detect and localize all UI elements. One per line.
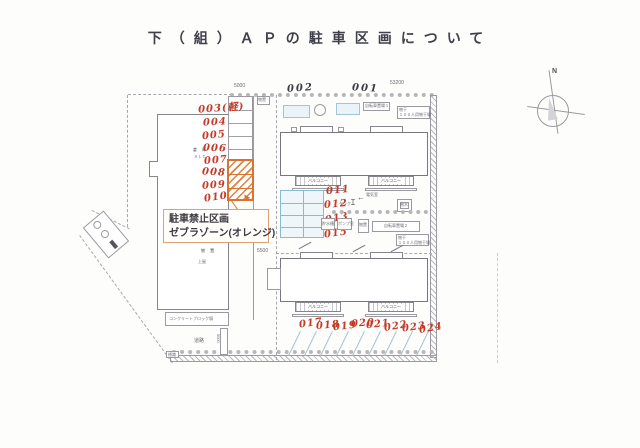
tree-symbol bbox=[100, 228, 111, 239]
courtyard-dash-line bbox=[276, 95, 277, 360]
electric-room-label: 電気室 bbox=[366, 193, 378, 198]
building-left-label2: 物 置 bbox=[201, 249, 216, 254]
zebra-divider bbox=[229, 174, 252, 175]
stall-number: 011 bbox=[325, 184, 350, 197]
stall-number: 007 bbox=[204, 154, 229, 167]
zebra-zone-orange bbox=[227, 159, 254, 201]
parking-stall-001 bbox=[336, 103, 360, 115]
stall-divider bbox=[229, 149, 252, 150]
building-left-canopy-label: 上屋 bbox=[198, 260, 206, 265]
grid-line bbox=[303, 191, 304, 237]
grid-line bbox=[281, 215, 323, 216]
zebra-divider bbox=[229, 188, 252, 189]
fence-bottom-posts bbox=[172, 350, 434, 354]
grid-line bbox=[281, 227, 323, 228]
parking-stall-002 bbox=[283, 105, 310, 118]
road-label: 道路 bbox=[194, 337, 204, 344]
grid-line bbox=[281, 203, 323, 204]
no-parking-callout: 駐車禁止区画 ゼブラゾーン(オレンジ) bbox=[163, 209, 269, 243]
bollard-row bbox=[332, 210, 428, 214]
balcony-strip: バルコニー bbox=[295, 302, 341, 312]
arrow-symbol: ← bbox=[357, 193, 365, 202]
boundary-left bbox=[127, 95, 128, 227]
bicycle-shed-1-label: 自転車置場１ bbox=[365, 104, 389, 109]
page-title: 下（組）ＡＰの駐車区画について bbox=[0, 28, 640, 48]
tree-label: 樹木 bbox=[400, 203, 408, 208]
drying-sub-label-top: １００人用物干場 bbox=[399, 113, 431, 118]
balcony-strip: バルコニー bbox=[368, 176, 414, 186]
pump-room-label: ポンプ室 bbox=[338, 222, 354, 227]
balcony-label: バルコニー bbox=[379, 178, 403, 184]
building-upper bbox=[280, 132, 428, 176]
manhole-circle bbox=[314, 104, 326, 116]
boundary-wall-right bbox=[430, 95, 437, 358]
steel-beam-symbol: Ｉ bbox=[349, 197, 357, 208]
building-left-notch bbox=[149, 161, 158, 177]
building-lower-annex bbox=[267, 268, 281, 290]
tree-symbol bbox=[92, 219, 103, 230]
balcony-label: バルコニー bbox=[306, 304, 330, 310]
dimension-top-right: 53200 bbox=[390, 80, 404, 86]
north-label: N bbox=[552, 68, 557, 75]
boundary-top-left bbox=[128, 94, 232, 95]
boundary-far-right bbox=[497, 253, 498, 363]
block-wall-label: コンクリートブロック塀 bbox=[169, 317, 213, 322]
road-dimension: 5000 bbox=[215, 334, 220, 343]
drive-aisle-line bbox=[253, 96, 254, 320]
shed-top-label: 物置 bbox=[258, 98, 266, 103]
callout-line1: 駐車禁止区画 bbox=[169, 213, 263, 227]
balcony-walk bbox=[365, 188, 417, 191]
balcony-label: バルコニー bbox=[379, 304, 403, 310]
storage-shed-mid-label: 物置 bbox=[359, 223, 367, 228]
stall-number: 008 bbox=[202, 166, 226, 178]
callout-line2: ゼブラゾーン(オレンジ) bbox=[169, 227, 263, 241]
stall-number-ink: 002 bbox=[287, 82, 315, 95]
balcony-label: バルコニー bbox=[306, 178, 330, 184]
water-tank-label: 貯水槽 bbox=[322, 222, 334, 227]
sign-label: 標識 bbox=[168, 353, 176, 358]
dimension-top-left: 5000 bbox=[234, 83, 245, 89]
survey-marker bbox=[109, 239, 118, 248]
stall-number: 003(軽) bbox=[198, 97, 245, 115]
stall-number: 006 bbox=[203, 143, 227, 155]
bicycle-shed-2-label: 自転車置場２ bbox=[384, 224, 408, 229]
building-lower bbox=[280, 258, 428, 302]
scanned-site-plan-page: 下（組）ＡＰの駐車区画について 倉 庫 ＡＬＣ 物 置 上屋 コンクリートブロッ… bbox=[0, 0, 640, 448]
stall-divider bbox=[229, 123, 252, 124]
boundary-wall-bottom bbox=[170, 355, 437, 362]
bench-mark bbox=[353, 245, 366, 252]
stall-number: 004 bbox=[203, 116, 227, 128]
balcony-strip: バルコニー bbox=[368, 302, 414, 312]
road-edge-strip bbox=[220, 328, 228, 355]
bench-mark bbox=[299, 242, 312, 249]
stall-divider bbox=[229, 136, 252, 137]
stall-number-ink: 001 bbox=[352, 82, 379, 94]
dimension-mid: 5500 bbox=[257, 248, 268, 254]
parking-grid-blue bbox=[280, 190, 324, 238]
